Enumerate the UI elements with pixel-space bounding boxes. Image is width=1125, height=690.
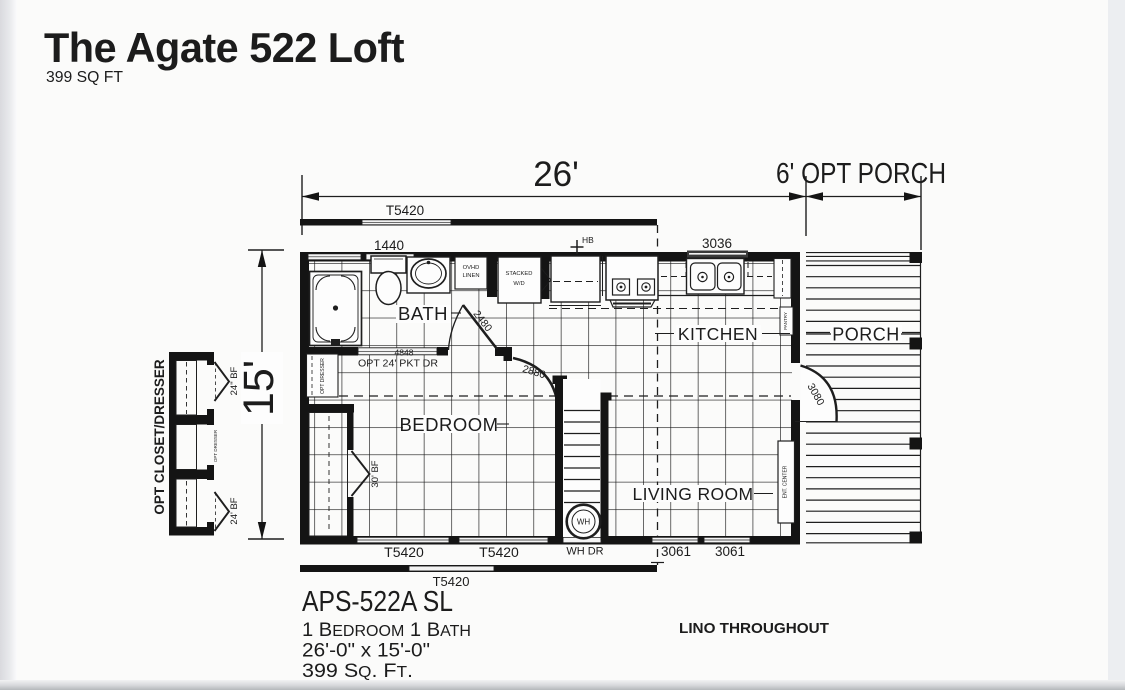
svg-text:OPT DRESSER: OPT DRESSER	[320, 358, 326, 394]
svg-text:LINO THROUGHOUT: LINO THROUGHOUT	[679, 620, 829, 637]
svg-text:3036: 3036	[702, 236, 732, 251]
svg-text:1 BEDROOM 1 BATH: 1 BEDROOM 1 BATH	[302, 619, 471, 641]
svg-text:APS-522A SL: APS-522A SL	[302, 586, 453, 618]
svg-text:30' BF: 30' BF	[370, 460, 381, 487]
svg-text:T5420: T5420	[384, 544, 424, 560]
svg-text:STACKED: STACKED	[506, 271, 533, 277]
svg-text:The Agate 522 Loft: The Agate 522 Loft	[44, 24, 404, 71]
svg-text:26'-0" x 15'-0": 26'-0" x 15'-0"	[302, 640, 430, 662]
svg-text:399 SQ FT: 399 SQ FT	[46, 69, 124, 86]
svg-text:OPT DRESSER: OPT DRESSER	[213, 429, 218, 462]
svg-text:PORCH: PORCH	[832, 325, 900, 345]
svg-text:KITCHEN: KITCHEN	[678, 324, 758, 344]
svg-text:WH: WH	[577, 518, 591, 527]
svg-text:24' BF: 24' BF	[229, 497, 240, 524]
svg-text:399 SQ. FT.: 399 SQ. FT.	[302, 660, 413, 682]
svg-text:BATH: BATH	[398, 303, 448, 324]
svg-text:T5420: T5420	[479, 544, 519, 560]
svg-text:OVHD: OVHD	[463, 265, 480, 271]
svg-text:ENT. CENTER: ENT. CENTER	[783, 465, 789, 498]
svg-text:26': 26'	[533, 155, 579, 194]
svg-text:LIVING ROOM: LIVING ROOM	[632, 484, 753, 504]
svg-text:W/D: W/D	[513, 281, 524, 287]
svg-text:OPT 24' PKT DR: OPT 24' PKT DR	[358, 358, 438, 370]
svg-text:3061: 3061	[661, 544, 691, 559]
svg-text:T5420: T5420	[386, 203, 424, 218]
svg-text:24" BF: 24" BF	[229, 366, 240, 395]
svg-text:BEDROOM: BEDROOM	[399, 414, 498, 435]
svg-text:15': 15'	[235, 360, 283, 416]
svg-text:1440: 1440	[374, 238, 404, 253]
svg-text:PANTRY: PANTRY	[783, 312, 788, 330]
svg-text:LINEN: LINEN	[462, 273, 479, 279]
svg-text:4848: 4848	[395, 348, 414, 358]
svg-text:OPT CLOSET/DRESSER: OPT CLOSET/DRESSER	[152, 359, 167, 515]
svg-text:WH DR: WH DR	[566, 546, 603, 558]
svg-text:3061: 3061	[715, 544, 745, 559]
svg-text:HB: HB	[582, 235, 594, 245]
